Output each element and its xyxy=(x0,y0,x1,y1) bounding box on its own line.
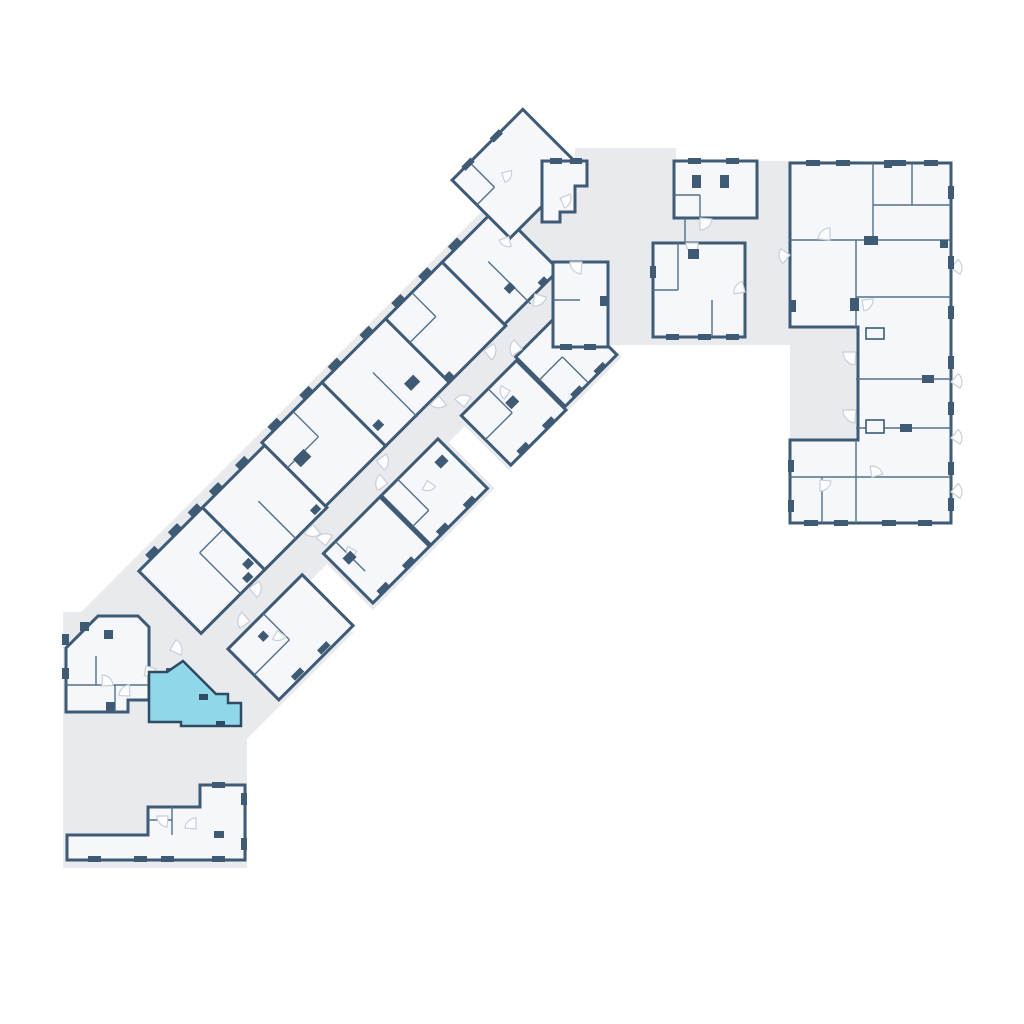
window-mark xyxy=(864,236,878,245)
window-mark xyxy=(241,793,247,805)
window-mark xyxy=(948,402,954,415)
window-mark xyxy=(134,856,147,862)
window-mark xyxy=(726,334,739,340)
window-mark xyxy=(550,158,562,164)
window-mark xyxy=(199,694,208,700)
window-mark xyxy=(214,831,224,838)
window-mark xyxy=(924,160,938,166)
window-mark xyxy=(88,856,101,862)
window-mark xyxy=(900,424,912,432)
window-mark xyxy=(948,356,954,369)
window-mark xyxy=(212,856,225,862)
window-mark xyxy=(940,240,948,248)
window-mark xyxy=(692,175,701,188)
corridor-right-notch xyxy=(790,327,858,440)
window-mark xyxy=(666,334,679,340)
window-mark xyxy=(884,160,892,168)
floor-plan-canvas xyxy=(0,0,1024,1024)
window-mark xyxy=(836,160,850,166)
floor-plan-svg xyxy=(0,0,1024,1024)
window-mark xyxy=(560,344,572,350)
window-mark xyxy=(788,500,794,512)
window-mark xyxy=(948,306,954,319)
window-mark xyxy=(806,160,820,166)
window-mark xyxy=(104,630,113,639)
unit-top-a xyxy=(674,161,757,218)
window-mark xyxy=(600,296,607,306)
window-mark xyxy=(948,462,954,475)
window-mark xyxy=(834,520,848,526)
window-mark xyxy=(892,160,906,166)
window-mark xyxy=(62,634,69,645)
window-mark xyxy=(804,520,818,526)
window-mark xyxy=(584,344,596,350)
window-mark xyxy=(726,158,739,164)
window-mark xyxy=(948,256,954,269)
window-mark xyxy=(882,520,896,526)
window-mark xyxy=(698,334,711,340)
window-mark xyxy=(850,298,859,311)
shaft-box xyxy=(866,420,884,433)
window-mark xyxy=(688,249,699,259)
window-mark xyxy=(212,782,225,788)
window-mark xyxy=(790,300,796,312)
unit-top-d xyxy=(553,262,608,347)
window-mark xyxy=(161,856,174,862)
shaft-box xyxy=(866,328,884,339)
window-mark xyxy=(216,721,225,727)
window-mark xyxy=(948,498,954,511)
window-mark xyxy=(650,266,656,278)
window-mark xyxy=(62,668,69,679)
window-mark xyxy=(570,158,582,164)
window-mark xyxy=(688,158,701,164)
window-mark xyxy=(948,186,954,199)
window-mark xyxy=(241,838,247,850)
window-mark xyxy=(922,375,934,383)
window-mark xyxy=(720,175,729,188)
window-mark xyxy=(106,702,115,711)
window-mark xyxy=(918,520,932,526)
window-mark xyxy=(80,622,89,631)
window-mark xyxy=(788,460,794,472)
